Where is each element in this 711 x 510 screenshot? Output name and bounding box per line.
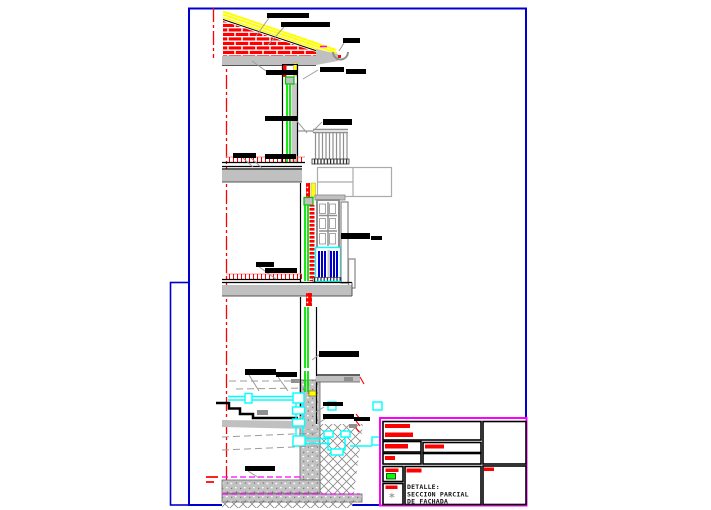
leader-line [303,70,318,79]
annotation-label [281,22,330,27]
annotation-label [266,70,297,75]
brick-leaf [310,205,315,281]
annotation-label [267,13,309,18]
title-block: * DETALLE: SECCION PARCIAL DE FACHADA [380,418,527,506]
grade-marks [355,377,364,432]
annotation-label [341,233,370,239]
floor-finish-hatch [226,274,302,279]
titleblock-field [484,468,494,472]
pipe-elbow [293,436,305,446]
tb-logo-box [483,422,526,465]
ring-beam [286,77,295,84]
annotation-label [371,236,382,240]
titleblock-field [385,456,395,460]
footing [222,480,320,493]
annotation-label [265,268,297,273]
brick-strip [306,293,312,306]
annotation-label [323,402,343,406]
wall-core [292,83,298,162]
roof-assembly [222,12,348,66]
annotation-label [320,67,344,72]
titleblock-field [386,469,399,473]
window-door [313,195,355,288]
annotation-label [265,154,296,159]
annotation-label [323,119,352,125]
legend-color-swatch [387,474,396,480]
pipe-collar [245,394,252,404]
annotation-label [343,38,360,43]
legend-symbol: * [389,491,395,504]
leader-line [312,122,322,132]
annotation-label [233,153,256,158]
annotation-label [245,369,276,375]
leader-line [339,43,344,51]
parapet-elevation [318,168,392,197]
upper-exterior-wall [282,63,298,162]
construction-line [236,388,306,389]
titleblock-field [385,424,410,428]
annotation-label [256,262,274,267]
tb-scale-box [483,466,526,505]
annotation-label [323,414,354,419]
roof-slab [222,56,316,65]
pipe-elbow [293,393,304,403]
annotation-label [276,372,297,377]
tb-field-box [423,454,481,465]
datum-marks [206,477,218,482]
railing-base [312,159,349,164]
slab-body [222,170,302,183]
titleblock-field [386,486,398,490]
outer-jamb [341,202,348,283]
slab-body [222,285,352,296]
blinding-layer [222,494,362,502]
annotation-label [265,116,297,121]
leader-line [278,377,288,391]
facade-section-drawing: * DETALLE: SECCION PARCIAL DE FACHADA [0,0,711,510]
lintel [304,198,313,206]
middle-wall [301,183,316,283]
titleblock-field [425,445,444,449]
annotation-label [245,466,275,471]
base-block [309,391,316,396]
railing-balusters [316,133,348,160]
annotation-label [354,417,370,421]
sidewalk-slab [316,376,360,382]
gutter-water-mark [338,55,341,58]
annotation-label [319,351,359,357]
detail-title-line3: DE FACHADA [407,498,448,506]
titleblock-field [407,469,422,473]
sheet-border-annex [171,283,190,506]
titleblock-field [385,444,408,449]
annotation-label [346,69,366,74]
titleblock-field [385,433,413,438]
brick-strip [306,183,310,197]
balcony-railing [298,130,349,165]
cad-viewer-canvas: * DETALLE: SECCION PARCIAL DE FACHADA [0,0,711,510]
floor-slab-upper [222,157,305,182]
drain-inlet [373,402,382,410]
